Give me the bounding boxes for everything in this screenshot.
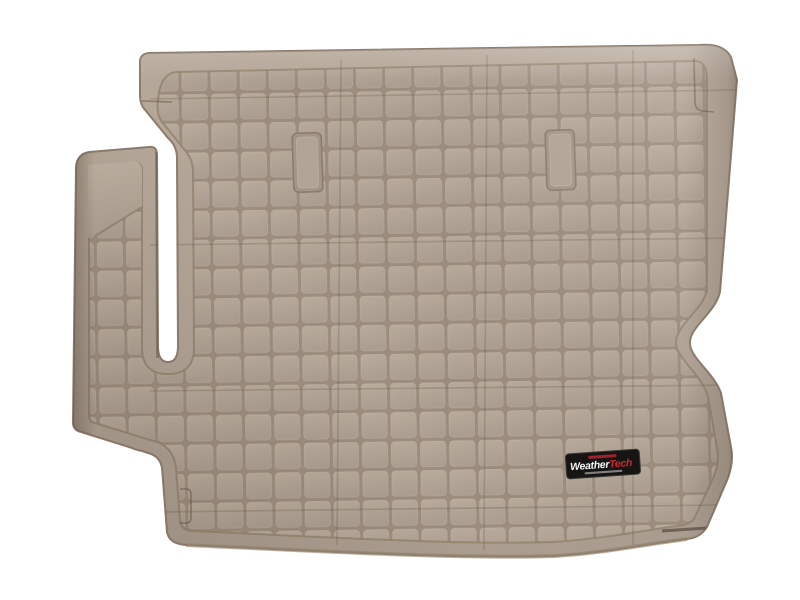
cargo-liner-product-photo: WeatherTech	[0, 0, 800, 600]
brand-tech: Tech	[609, 457, 633, 471]
weathertech-badge: WeatherTech	[565, 449, 641, 479]
product-photo-canvas: WeatherTech	[0, 0, 800, 600]
